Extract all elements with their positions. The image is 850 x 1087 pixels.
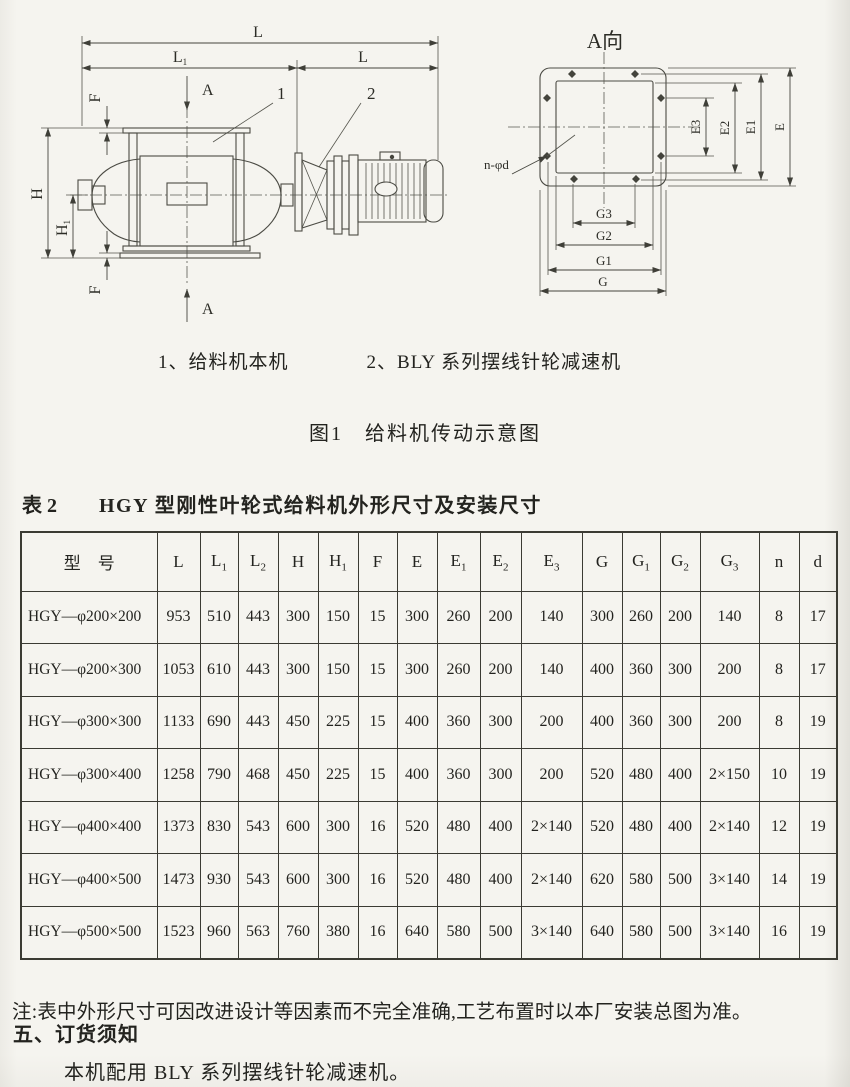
- dim-cell: 3×140: [521, 906, 582, 959]
- column-header: E: [397, 532, 437, 591]
- dim-cell: 520: [582, 749, 622, 802]
- column-header: G: [582, 532, 622, 591]
- dim-cell: 8: [759, 696, 799, 749]
- bolt-holes: [543, 70, 665, 183]
- dim-cell: 760: [278, 906, 318, 959]
- dim-cell: 2×150: [700, 749, 759, 802]
- dimension-H1: H1: [54, 195, 88, 258]
- dim-cell: 640: [582, 906, 622, 959]
- dim-cell: 150: [318, 591, 358, 644]
- dim-cell: 443: [238, 644, 278, 697]
- dim-label-G: G: [598, 274, 607, 289]
- model-cell: HGY—φ200×200: [21, 591, 157, 644]
- dim-cell: 14: [759, 854, 799, 907]
- dim-cell: 15: [358, 591, 397, 644]
- dim-cell: 930: [200, 854, 238, 907]
- dim-cell: 600: [278, 854, 318, 907]
- dim-cell: 450: [278, 696, 318, 749]
- dimension-H: H: [29, 128, 123, 258]
- table-body: HGY—φ200×2009535104433001501530026020014…: [21, 591, 837, 959]
- column-header: E3: [521, 532, 582, 591]
- dim-cell: 580: [622, 906, 660, 959]
- dim-cell: 520: [397, 801, 437, 854]
- dim-cell: 140: [700, 591, 759, 644]
- dim-cell: 520: [582, 801, 622, 854]
- table-row: HGY—φ400×4001373830543600300165204804002…: [21, 801, 837, 854]
- dim-cell: 480: [437, 854, 480, 907]
- column-header: F: [358, 532, 397, 591]
- dim-cell: 580: [622, 854, 660, 907]
- dim-cell: 300: [397, 591, 437, 644]
- table-row: HGY—φ300×4001258790468450225154003603002…: [21, 749, 837, 802]
- dim-cell: 12: [759, 801, 799, 854]
- column-header: H1: [318, 532, 358, 591]
- dim-cell: 543: [238, 801, 278, 854]
- dim-cell: 200: [480, 591, 521, 644]
- dim-cell: 19: [799, 801, 837, 854]
- dim-cell: 500: [660, 854, 700, 907]
- column-header: E1: [437, 532, 480, 591]
- table-row: HGY—φ500×5001523960563760380166405805003…: [21, 906, 837, 959]
- dim-cell: 8: [759, 591, 799, 644]
- dim-cell: 16: [358, 906, 397, 959]
- dim-cell: 443: [238, 591, 278, 644]
- section-label-A-bottom: A: [202, 301, 214, 318]
- dim-cell: 400: [480, 854, 521, 907]
- dim-cell: 360: [437, 696, 480, 749]
- dim-cell: 16: [358, 854, 397, 907]
- dim-cell: 790: [200, 749, 238, 802]
- part-label-1: 1: [277, 84, 286, 103]
- dim-cell: 16: [759, 906, 799, 959]
- dim-cell: 1523: [157, 906, 200, 959]
- dim-cell: 300: [660, 644, 700, 697]
- dim-cell: 19: [799, 854, 837, 907]
- dim-cell: 830: [200, 801, 238, 854]
- document-page: L L1 L A A 1 2: [0, 0, 850, 1087]
- dim-cell: 953: [157, 591, 200, 644]
- dim-cell: 360: [622, 644, 660, 697]
- column-header: 型 号: [21, 532, 157, 591]
- dim-cell: 620: [582, 854, 622, 907]
- dim-label-G3: G3: [596, 206, 612, 221]
- column-header: n: [759, 532, 799, 591]
- dim-cell: 580: [437, 906, 480, 959]
- dim-cell: 480: [622, 801, 660, 854]
- dim-label-L1: L1: [173, 49, 187, 67]
- dim-label-G2: G2: [596, 228, 612, 243]
- dim-cell: 2×140: [521, 801, 582, 854]
- dim-cell: 690: [200, 696, 238, 749]
- dim-cell: 200: [521, 749, 582, 802]
- dim-cell: 600: [278, 801, 318, 854]
- dim-cell: 15: [358, 644, 397, 697]
- dimension-table: 型 号LL1L2HH1FEE1E2E3GG1G2G3nd HGY—φ200×20…: [20, 531, 838, 960]
- dim-cell: 19: [799, 749, 837, 802]
- dim-cell: 360: [437, 749, 480, 802]
- model-cell: HGY—φ200×300: [21, 644, 157, 697]
- column-header: L2: [238, 532, 278, 591]
- figure-legend: 1、给料机本机 2、BLY 系列摆线针轮减速机: [158, 347, 621, 374]
- column-header: G2: [660, 532, 700, 591]
- dim-cell: 260: [622, 591, 660, 644]
- table-row: HGY—φ200×3001053610443300150153002602001…: [21, 644, 837, 697]
- dim-cell: 2×140: [521, 854, 582, 907]
- dim-label-E2: E2: [717, 121, 732, 135]
- dim-cell: 300: [660, 696, 700, 749]
- dim-cell: 1053: [157, 644, 200, 697]
- column-header: H: [278, 532, 318, 591]
- dim-cell: 19: [799, 696, 837, 749]
- view-title: A向: [587, 29, 623, 53]
- dim-label-E1: E1: [743, 120, 758, 134]
- dim-cell: 260: [437, 591, 480, 644]
- figure-caption: 图1 给料机传动示意图: [0, 417, 850, 446]
- legend-item-1: 1、给料机本机: [158, 347, 289, 374]
- dim-cell: 3×140: [700, 906, 759, 959]
- column-header: G1: [622, 532, 660, 591]
- dim-cell: 563: [238, 906, 278, 959]
- dim-cell: 450: [278, 749, 318, 802]
- dim-cell: 360: [622, 696, 660, 749]
- table-title: HGY 型刚性叶轮式给料机外形尺寸及安装尺寸: [99, 489, 542, 518]
- feeder-side-view-diagram: L L1 L A A 1 2: [30, 8, 460, 330]
- dim-cell: 16: [358, 801, 397, 854]
- dimension-L1-and-L: L1 L: [82, 49, 438, 153]
- dim-cell: 300: [397, 644, 437, 697]
- drive-unit-drawing: [295, 152, 443, 235]
- dim-cell: 200: [521, 696, 582, 749]
- dim-cell: 200: [660, 591, 700, 644]
- dim-cell: 468: [238, 749, 278, 802]
- dim-label-L: L: [253, 24, 263, 41]
- dim-cell: 260: [437, 644, 480, 697]
- dim-cell: 400: [480, 801, 521, 854]
- dim-label-H1: H1: [54, 220, 72, 236]
- dim-cell: 400: [397, 749, 437, 802]
- section-body: 本机配用 BLY 系列摆线针轮减速机。: [64, 1056, 410, 1085]
- table-row: HGY—φ300×3001133690443450225154003603002…: [21, 696, 837, 749]
- dim-cell: 300: [480, 749, 521, 802]
- feeder-body-drawing: [78, 128, 293, 258]
- dim-cell: 300: [582, 591, 622, 644]
- flange-outline: [508, 52, 700, 208]
- dim-cell: 15: [358, 696, 397, 749]
- dim-label-H: H: [29, 188, 46, 200]
- dim-label-F-bottom: F: [87, 285, 104, 294]
- dim-cell: 400: [660, 749, 700, 802]
- dim-cell: 500: [660, 906, 700, 959]
- section-heading: 五、订货须知: [13, 1018, 139, 1047]
- dim-cell: 400: [582, 696, 622, 749]
- dim-cell: 400: [582, 644, 622, 697]
- column-header: d: [799, 532, 837, 591]
- dim-cell: 300: [318, 854, 358, 907]
- table-title-row: 表 2 HGY 型刚性叶轮式给料机外形尺寸及安装尺寸: [22, 489, 542, 518]
- column-header: G3: [700, 532, 759, 591]
- dim-cell: 140: [521, 644, 582, 697]
- dim-cell: 400: [660, 801, 700, 854]
- dim-label-L-right: L: [358, 49, 368, 66]
- dim-cell: 300: [480, 696, 521, 749]
- dim-cell: 960: [200, 906, 238, 959]
- dim-cell: 1133: [157, 696, 200, 749]
- model-cell: HGY—φ300×300: [21, 696, 157, 749]
- dim-cell: 480: [437, 801, 480, 854]
- dim-cell: 200: [700, 696, 759, 749]
- dim-label-E: E: [772, 123, 787, 131]
- model-cell: HGY—φ400×500: [21, 854, 157, 907]
- dim-cell: 1258: [157, 749, 200, 802]
- column-header: L: [157, 532, 200, 591]
- section-label-A-top: A: [202, 82, 214, 99]
- flange-rear-view-diagram: A向 n-φd: [478, 8, 848, 308]
- table-label: 表 2: [22, 489, 57, 518]
- dim-label-G1: G1: [596, 253, 612, 268]
- model-cell: HGY—φ500×500: [21, 906, 157, 959]
- part-label-2: 2: [367, 84, 376, 103]
- dim-cell: 200: [480, 644, 521, 697]
- dim-cell: 380: [318, 906, 358, 959]
- dim-cell: 15: [358, 749, 397, 802]
- dim-cell: 225: [318, 749, 358, 802]
- dim-cell: 400: [397, 696, 437, 749]
- section-arrows-A: A A: [187, 76, 214, 322]
- dim-cell: 480: [622, 749, 660, 802]
- dim-cell: 150: [318, 644, 358, 697]
- dim-cell: 17: [799, 591, 837, 644]
- dim-cell: 8: [759, 644, 799, 697]
- dim-cell: 225: [318, 696, 358, 749]
- dim-label-F-top: F: [87, 93, 104, 102]
- dim-cell: 300: [278, 644, 318, 697]
- dimension-F-bottom: F: [87, 231, 120, 294]
- dim-cell: 10: [759, 749, 799, 802]
- dim-cell: 543: [238, 854, 278, 907]
- dim-cell: 1373: [157, 801, 200, 854]
- dim-cell: 1473: [157, 854, 200, 907]
- legend-item-2: 2、BLY 系列摆线针轮减速机: [367, 347, 622, 374]
- dim-cell: 443: [238, 696, 278, 749]
- dimension-F-top: F: [87, 93, 123, 155]
- dim-cell: 300: [278, 591, 318, 644]
- column-header: E2: [480, 532, 521, 591]
- dim-cell: 300: [318, 801, 358, 854]
- bolt-holes-callout: n-φd: [484, 135, 575, 174]
- dim-cell: 510: [200, 591, 238, 644]
- holes-label: n-φd: [484, 157, 509, 172]
- model-cell: HGY—φ400×400: [21, 801, 157, 854]
- dim-cell: 3×140: [700, 854, 759, 907]
- column-header: L1: [200, 532, 238, 591]
- dim-label-E3: E3: [688, 120, 703, 134]
- table-row: HGY—φ400×5001473930543600300165204804002…: [21, 854, 837, 907]
- model-cell: HGY—φ300×400: [21, 749, 157, 802]
- dim-cell: 520: [397, 854, 437, 907]
- dim-cell: 500: [480, 906, 521, 959]
- dimension-L-total: L: [82, 24, 438, 160]
- dim-cell: 610: [200, 644, 238, 697]
- table-row: HGY—φ200×2009535104433001501530026020014…: [21, 591, 837, 644]
- dim-cell: 17: [799, 644, 837, 697]
- dim-cell: 200: [700, 644, 759, 697]
- dim-cell: 140: [521, 591, 582, 644]
- dim-cell: 640: [397, 906, 437, 959]
- dimensions-G: G3 G2 G1 G: [540, 162, 666, 296]
- dim-cell: 19: [799, 906, 837, 959]
- dim-cell: 2×140: [700, 801, 759, 854]
- table-header-row: 型 号LL1L2HH1FEE1E2E3GG1G2G3nd: [21, 532, 837, 591]
